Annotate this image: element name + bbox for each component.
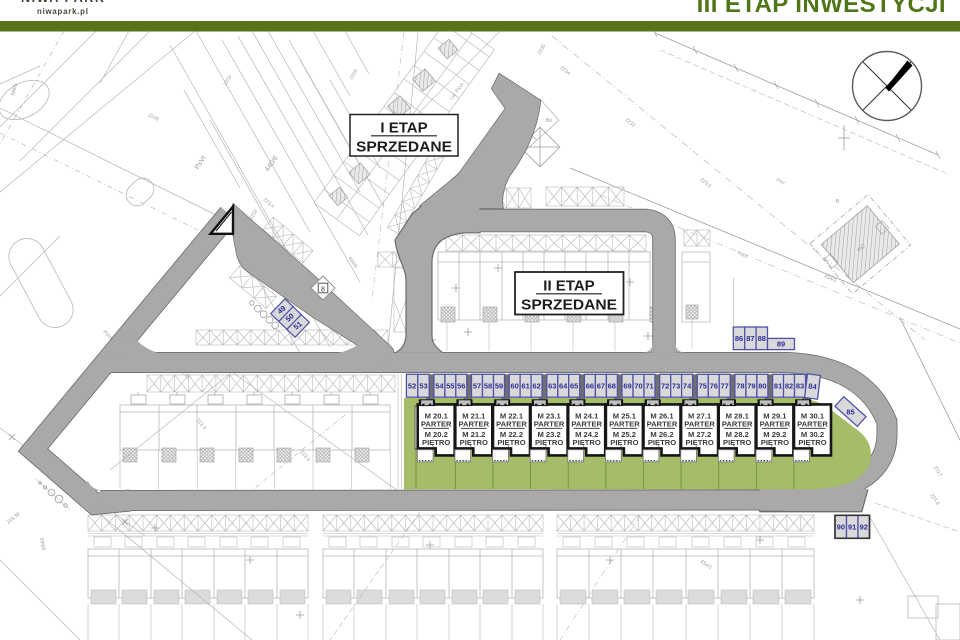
- svg-text:SPRZEDANE: SPRZEDANE: [356, 139, 452, 156]
- svg-text:PARTER: PARTER: [609, 420, 640, 429]
- svg-text:63: 63: [548, 381, 556, 390]
- svg-text:52: 52: [408, 381, 416, 390]
- svg-text:NIWA PARK: NIWA PARK: [21, 0, 106, 5]
- svg-text:PARTER: PARTER: [458, 420, 489, 429]
- svg-text:PIĘTRO: PIĘTRO: [761, 438, 789, 447]
- svg-text:70: 70: [634, 381, 642, 390]
- svg-text:PARTER: PARTER: [797, 420, 828, 429]
- svg-text:PIĘTRO: PIĘTRO: [798, 438, 826, 447]
- svg-text:90: 90: [837, 522, 845, 531]
- svg-text:87: 87: [746, 334, 754, 343]
- svg-text:Bo: Bo: [546, 118, 552, 124]
- svg-text:60: 60: [510, 381, 518, 390]
- svg-text:PIĘTRO: PIĘTRO: [497, 438, 525, 447]
- svg-text:62: 62: [532, 381, 540, 390]
- svg-text:55: 55: [446, 381, 454, 390]
- svg-text:64: 64: [559, 381, 568, 390]
- svg-text:81: 81: [774, 381, 782, 390]
- svg-text:89: 89: [777, 340, 785, 349]
- svg-text:78: 78: [736, 381, 744, 390]
- svg-text:PARTER: PARTER: [722, 420, 753, 429]
- svg-text:65: 65: [570, 381, 578, 390]
- svg-text:61: 61: [521, 381, 529, 390]
- svg-text:PIĘTRO: PIĘTRO: [648, 438, 676, 447]
- svg-text:71: 71: [645, 381, 653, 390]
- svg-text:56: 56: [457, 381, 465, 390]
- svg-text:74: 74: [683, 381, 692, 390]
- svg-text:PARTER: PARTER: [496, 420, 527, 429]
- svg-text:75: 75: [699, 381, 707, 390]
- svg-text:80: 80: [758, 381, 766, 390]
- svg-text:niwapark.pl: niwapark.pl: [37, 7, 89, 16]
- svg-text:PIĘTRO: PIĘTRO: [535, 438, 563, 447]
- svg-text:PARTER: PARTER: [534, 420, 565, 429]
- svg-text:58: 58: [484, 381, 492, 390]
- svg-text:PIĘTRO: PIĘTRO: [460, 438, 488, 447]
- svg-text:PARTER: PARTER: [684, 420, 715, 429]
- svg-text:I ETAP: I ETAP: [380, 120, 427, 137]
- svg-text:53: 53: [419, 381, 427, 390]
- svg-text:76: 76: [710, 381, 718, 390]
- svg-text:66: 66: [586, 381, 594, 390]
- svg-text:68: 68: [608, 381, 616, 390]
- svg-text:82: 82: [785, 381, 793, 390]
- svg-text:83: 83: [796, 381, 804, 390]
- svg-text:59: 59: [495, 381, 503, 390]
- svg-text:79: 79: [747, 381, 755, 390]
- svg-text:8: 8: [321, 286, 325, 293]
- svg-text:PIĘTRO: PIĘTRO: [573, 438, 601, 447]
- svg-text:73: 73: [672, 381, 680, 390]
- svg-text:SPRZEDANE: SPRZEDANE: [521, 297, 617, 314]
- svg-text:PARTER: PARTER: [421, 420, 452, 429]
- svg-text:57: 57: [473, 381, 481, 390]
- svg-text:PARTER: PARTER: [760, 420, 791, 429]
- svg-text:PIĘTRO: PIĘTRO: [723, 438, 751, 447]
- svg-text:PIĘTRO: PIĘTRO: [422, 438, 450, 447]
- svg-text:III ETAP INWESTYCJI: III ETAP INWESTYCJI: [697, 0, 946, 18]
- svg-text:88: 88: [758, 334, 766, 343]
- svg-text:86: 86: [735, 334, 743, 343]
- svg-text:PARTER: PARTER: [571, 420, 602, 429]
- svg-text:54: 54: [435, 381, 444, 390]
- svg-text:PARTER: PARTER: [647, 420, 678, 429]
- svg-text:67: 67: [597, 381, 605, 390]
- svg-text:72: 72: [661, 381, 669, 390]
- svg-text:II ETAP: II ETAP: [543, 278, 594, 295]
- svg-text:92: 92: [860, 522, 868, 531]
- svg-text:77: 77: [721, 381, 729, 390]
- svg-text:PIĘTRO: PIĘTRO: [610, 438, 638, 447]
- svg-text:69: 69: [623, 381, 631, 390]
- svg-text:91: 91: [848, 522, 856, 531]
- svg-text:PIĘTRO: PIĘTRO: [685, 438, 713, 447]
- svg-text:85: 85: [846, 408, 854, 417]
